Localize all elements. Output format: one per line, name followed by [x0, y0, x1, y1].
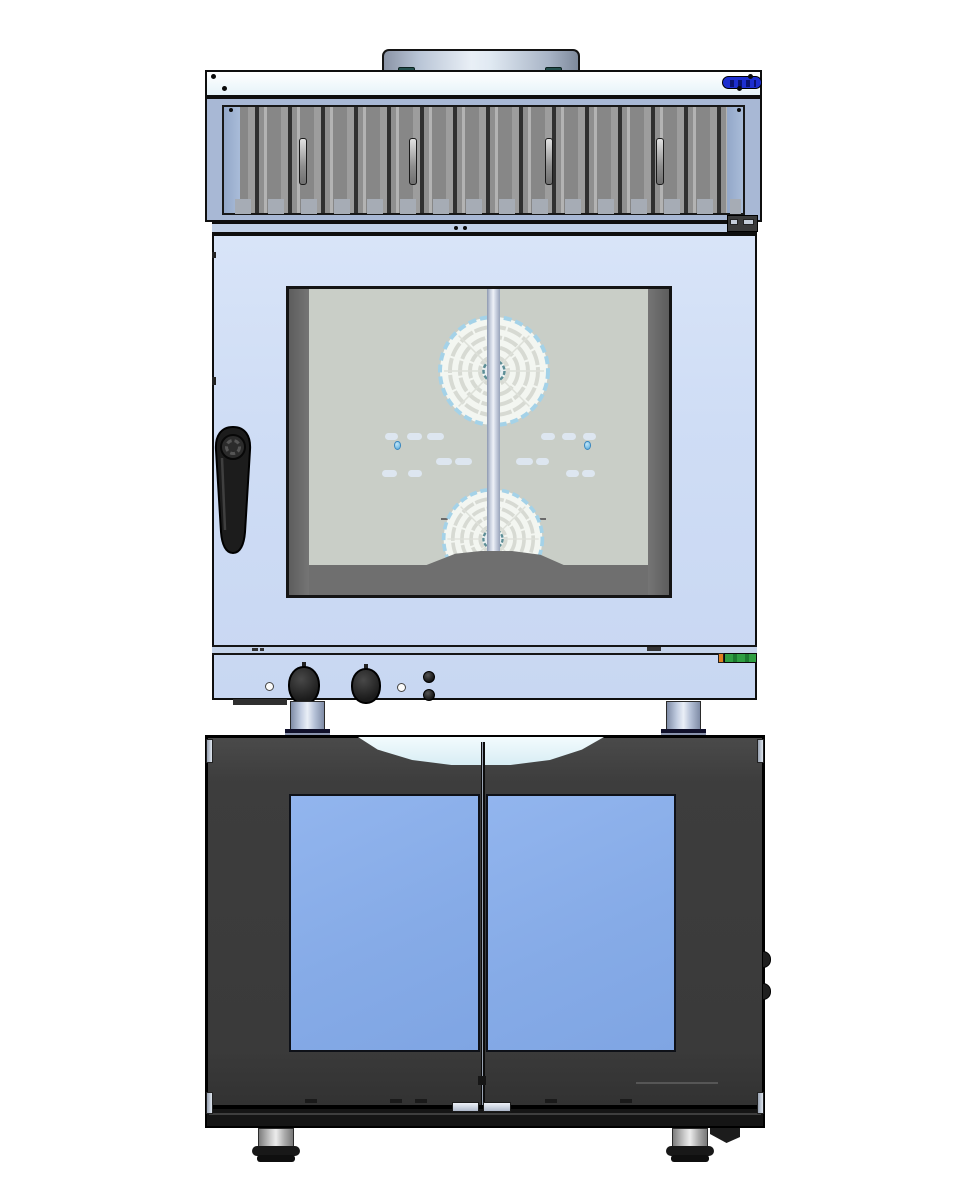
seam-mark [647, 647, 661, 651]
indicator-light-left [265, 682, 274, 691]
door-hinge-plate-right [483, 1102, 511, 1112]
steam-vent-slot [436, 458, 452, 465]
steam-vent-slot [583, 433, 596, 440]
cabinet-hinge-cover [757, 1092, 764, 1114]
indicator-light-right [397, 683, 406, 692]
push-button-bottom[interactable] [423, 689, 435, 701]
control-panel-seam [212, 645, 757, 655]
oven-leg-left [290, 701, 325, 731]
foot-ring [671, 1155, 709, 1162]
door-gap-mark [620, 1099, 632, 1103]
cabinet-side-hinge-pin [762, 983, 771, 1000]
door-hinge-plate-left [452, 1102, 479, 1112]
interior-center-rod [487, 289, 500, 552]
steam-vent-slot [385, 433, 398, 440]
brand-badge [722, 76, 762, 89]
push-button-top[interactable] [423, 671, 435, 683]
water-droplet-icon [394, 441, 401, 450]
hood-oven-joint-strip [212, 222, 757, 234]
cabinet-door-divider [481, 742, 485, 1105]
steam-vent-slot [566, 470, 579, 477]
steam-vent-slot [536, 458, 549, 465]
screw-icon [463, 226, 467, 230]
kick-strip-seam [209, 1113, 761, 1115]
door-gap-mark [415, 1099, 427, 1103]
baffle-bracket-row [226, 199, 741, 214]
seam-mark [252, 648, 258, 651]
knob-right[interactable] [351, 668, 381, 704]
steam-vent-slot [455, 458, 472, 465]
oven-leg-right [666, 701, 701, 731]
divider-nub [478, 1076, 486, 1085]
oven-base-step [233, 699, 287, 705]
window-frame-right-bar [648, 289, 669, 595]
door-gap-mark [545, 1099, 557, 1103]
baffle-pull-handle[interactable] [299, 138, 307, 185]
door-hinge-mark [212, 377, 216, 385]
steam-vent-slot [408, 470, 422, 477]
baffle-pull-handle[interactable] [545, 138, 553, 185]
latch-tab [730, 219, 738, 225]
steam-vent-slot [407, 433, 422, 440]
cabinet-foot-left [258, 1128, 294, 1148]
screw-icon [748, 74, 753, 79]
cabinet-door-glass-right[interactable] [486, 794, 676, 1052]
window-bottom-frame [309, 565, 648, 595]
screw-icon [737, 108, 741, 112]
rating-label [724, 653, 757, 663]
screw-icon [737, 86, 742, 91]
hood-inner-column-left [224, 107, 240, 213]
hood-inner-column-right [727, 107, 743, 213]
cabinet-hinge-cover [206, 739, 213, 763]
steam-vent-slot [516, 458, 533, 465]
steam-vent-slot [541, 433, 555, 440]
screw-icon [211, 74, 216, 79]
screw-icon [229, 108, 233, 112]
hood-top-panel [205, 70, 762, 97]
latch-tab [743, 219, 754, 225]
water-droplet-icon [584, 441, 591, 450]
screw-icon [222, 86, 227, 91]
cabinet-door-glass-left[interactable] [289, 794, 480, 1052]
cabinet-hinge-cover [206, 1092, 213, 1114]
cabinet-hinge-cover [757, 739, 764, 763]
steam-vent-slot [427, 433, 444, 440]
seam-mark [260, 648, 264, 651]
door-gap-mark [305, 1099, 317, 1103]
steam-vent-slot [582, 470, 595, 477]
drain-bracket [710, 1128, 740, 1143]
door-gap-mark [390, 1099, 402, 1103]
window-frame-left-bar [289, 289, 309, 595]
cabinet-panel-seam [636, 1082, 718, 1084]
oven-door-handle[interactable] [209, 424, 257, 556]
cad-render-canvas [0, 0, 970, 1200]
baffle-pull-handle[interactable] [409, 138, 417, 185]
screw-icon [454, 226, 458, 230]
cabinet-side-hinge-pin [762, 951, 771, 968]
baffle-pull-handle[interactable] [656, 138, 664, 185]
steam-vent-slot [562, 433, 576, 440]
cabinet-foot-right [672, 1128, 708, 1148]
steam-vent-slot [382, 470, 397, 477]
door-hinge-mark [212, 252, 216, 258]
foot-ring [257, 1155, 295, 1162]
knob-left[interactable] [288, 666, 320, 705]
